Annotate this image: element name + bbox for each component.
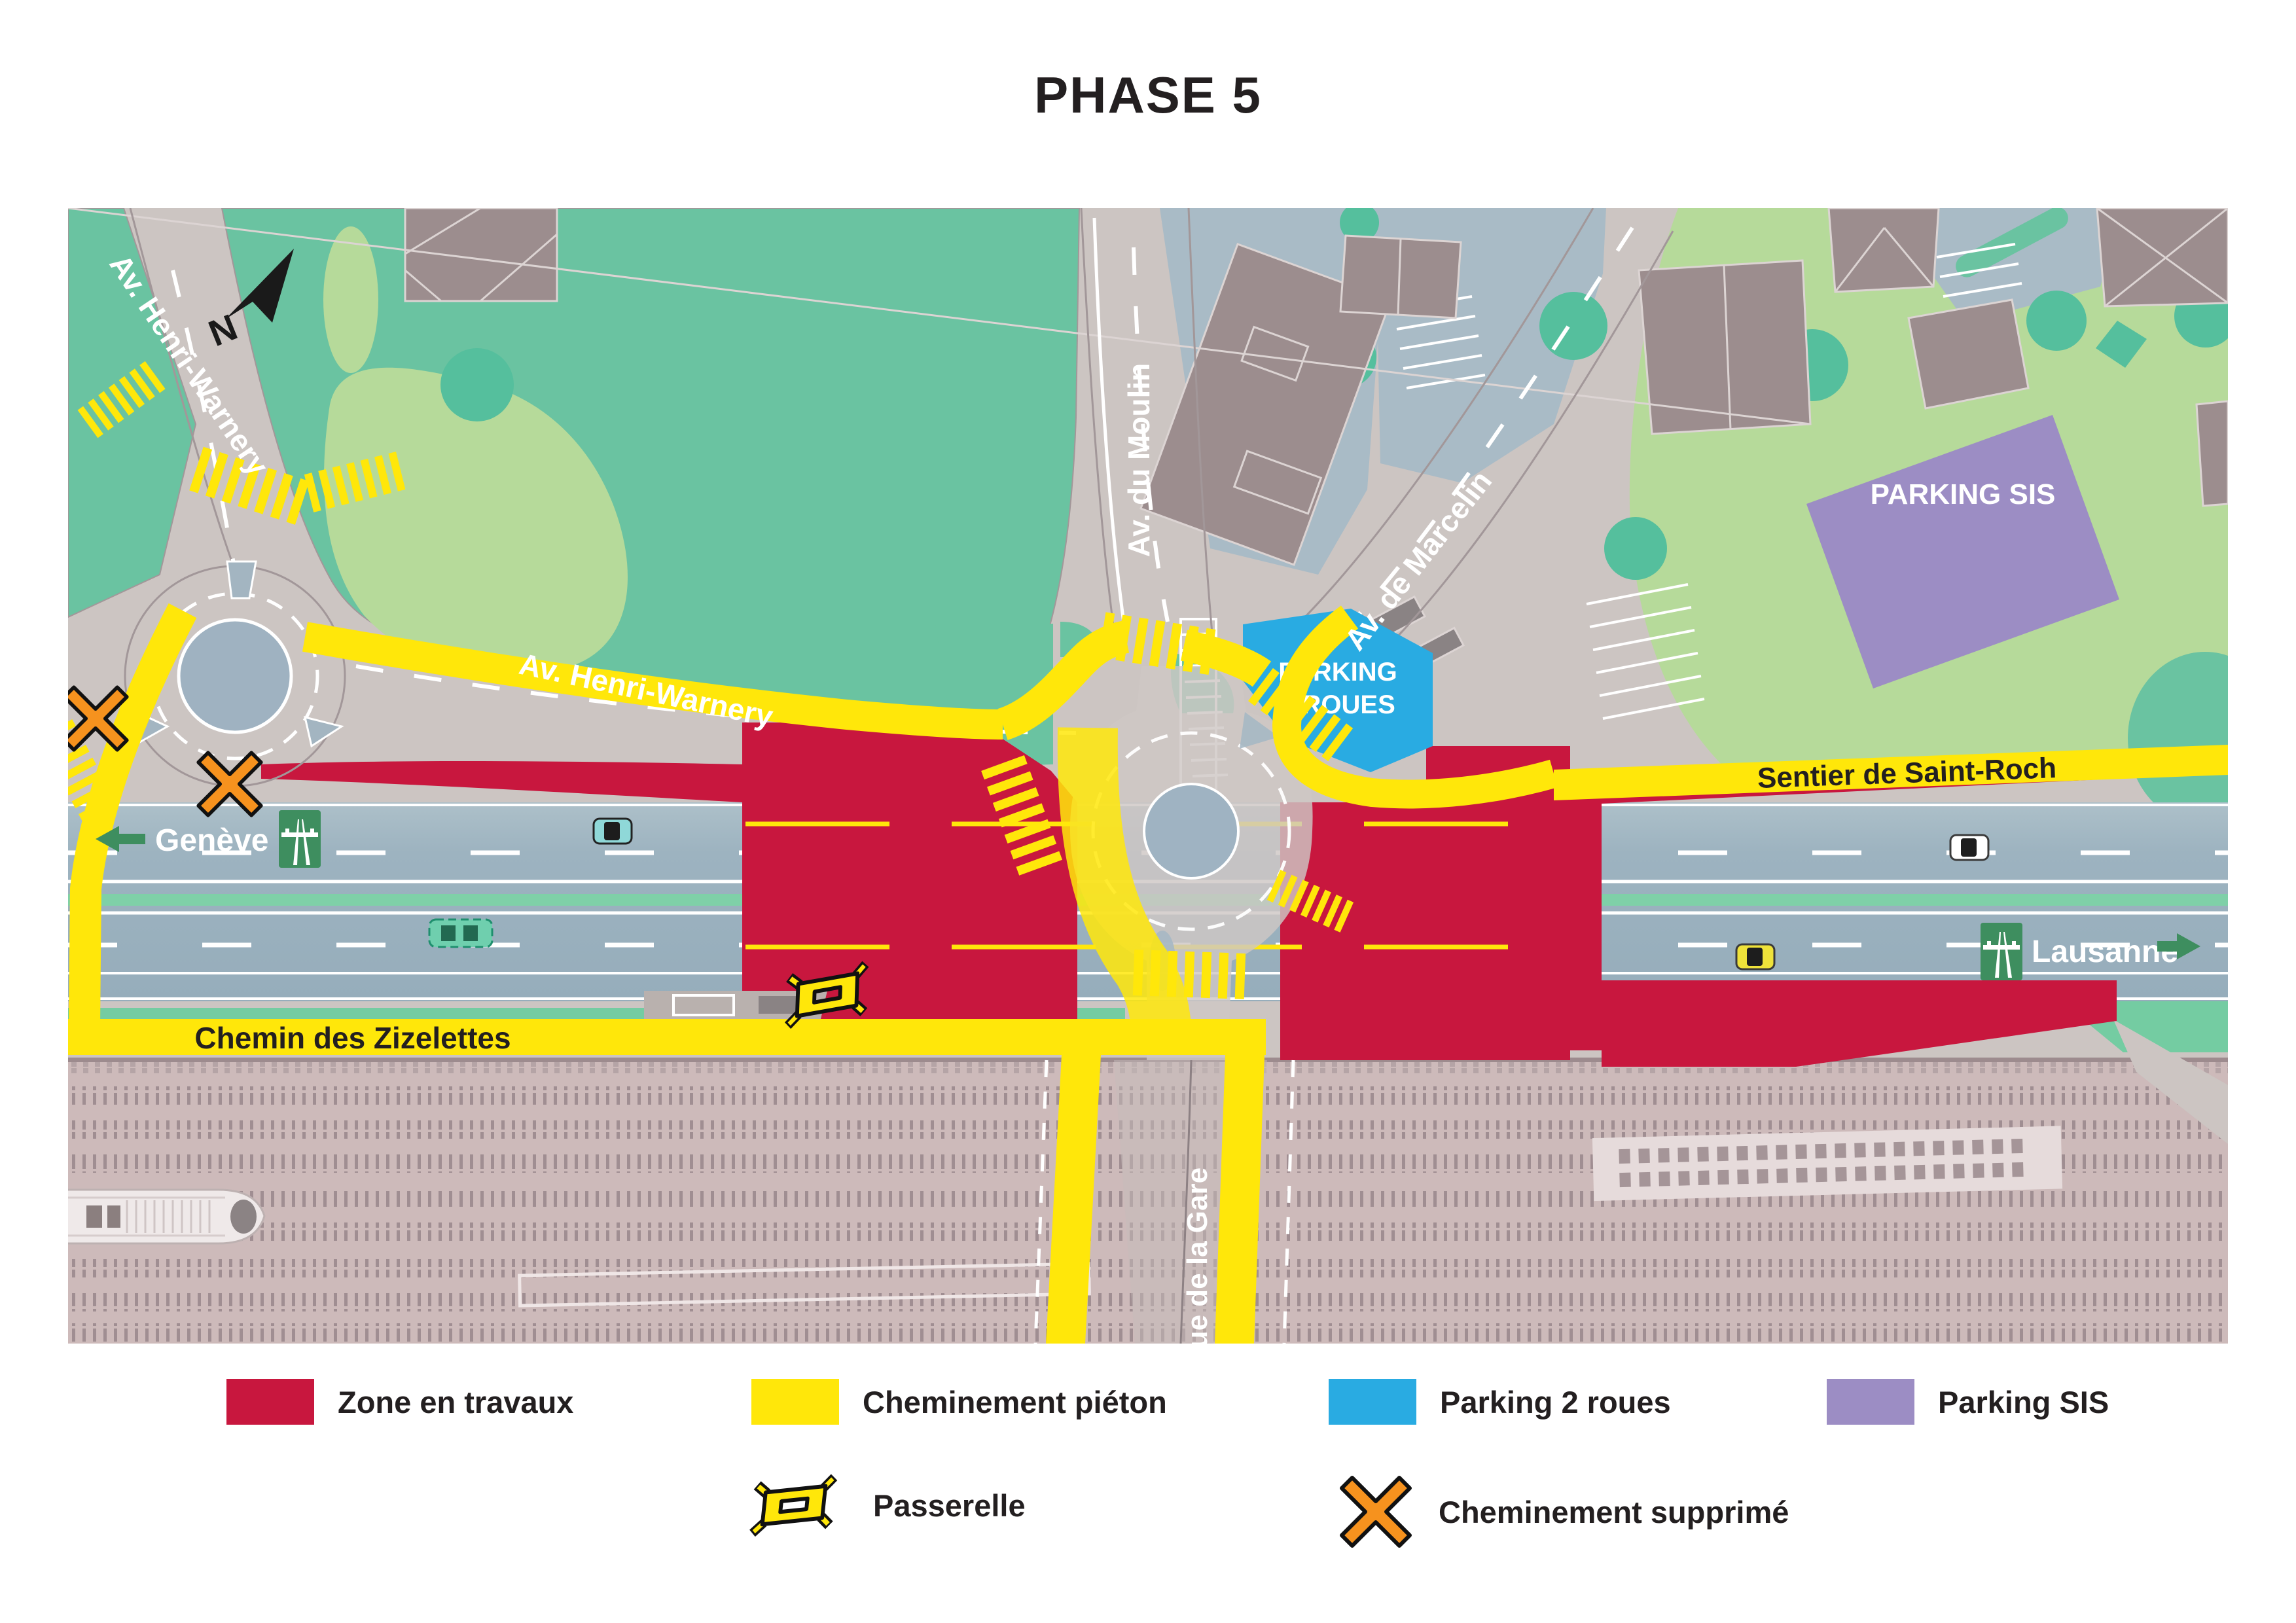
lausanne-label: Lausanne xyxy=(2032,935,2178,969)
legend-item-parking-sis: Parking SIS xyxy=(1827,1379,2109,1425)
car-cyan xyxy=(594,819,632,844)
map-canvas: PARKING 2 ROUES xyxy=(68,208,2228,1344)
legend-item-parking-2roues: Parking 2 roues xyxy=(1329,1379,1671,1425)
street-label-zizelettes: Chemin des Zizelettes xyxy=(194,1021,511,1055)
geneve-label: Genève xyxy=(155,823,268,858)
legend-label-zone-travaux: Zone en travaux xyxy=(338,1384,573,1420)
construction-phase-map: PARKING 2 ROUES xyxy=(68,208,2228,1344)
cheminement-supprime-icon xyxy=(1336,1472,1415,1551)
passerelle-icon xyxy=(738,1469,850,1541)
motorway-icon xyxy=(1981,923,2022,980)
street-label-rue-de-la-gare: Rue de la Gare xyxy=(1181,1168,1213,1344)
zone-travaux-swatch xyxy=(226,1379,314,1425)
car-yellow xyxy=(1736,944,1774,969)
car-white xyxy=(1950,835,1988,860)
legend-label-parking-2roues: Parking 2 roues xyxy=(1440,1384,1671,1420)
parking-2roues-swatch xyxy=(1329,1379,1416,1425)
bus-teal xyxy=(429,919,492,947)
legend-label-cheminement-supprime: Cheminement supprimé xyxy=(1439,1494,1789,1530)
street-label-du-moulin: Av. du Moulin xyxy=(1122,363,1156,557)
station-platform xyxy=(1592,1126,2062,1201)
legend-label-cheminement-pieton: Cheminement piéton xyxy=(863,1384,1167,1420)
legend-item-cheminement-pieton: Cheminement piéton xyxy=(751,1379,1167,1425)
legend-label-passerelle: Passerelle xyxy=(873,1488,1026,1524)
cheminement-pieton-swatch xyxy=(751,1379,839,1425)
legend-item-cheminement-supprime: Cheminement supprimé xyxy=(1336,1472,1789,1551)
legend-item-passerelle: Passerelle xyxy=(738,1469,1026,1541)
legend: Zone en travaux Cheminement piéton Parki… xyxy=(0,1342,2296,1623)
motorway-icon xyxy=(279,810,321,868)
legend-label-parking-sis: Parking SIS xyxy=(1938,1384,2109,1420)
parking-sis-swatch xyxy=(1827,1379,1914,1425)
parking-sis-label: PARKING SIS xyxy=(1871,478,2056,510)
train xyxy=(68,1190,264,1243)
phase-plan-page: PHASE 5 xyxy=(0,0,2296,1623)
legend-item-zone-travaux: Zone en travaux xyxy=(226,1379,573,1425)
page-title: PHASE 5 xyxy=(0,65,2296,125)
